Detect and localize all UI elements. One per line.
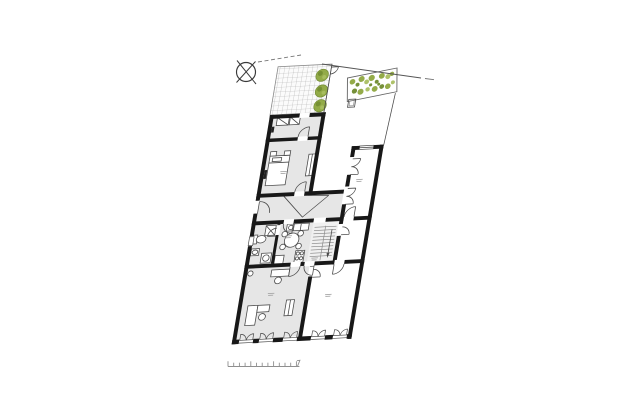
desk-left-return (257, 305, 270, 313)
washing-machine (260, 253, 272, 263)
floor-plan-page (0, 0, 640, 419)
room-label-mark-4 (356, 179, 363, 180)
door-r1-r2 (344, 207, 356, 217)
desk-top (271, 269, 290, 277)
north-compass-icon (237, 61, 257, 85)
garden-bed (347, 68, 397, 102)
site-plan (231, 61, 402, 345)
room-label-mark-5 (325, 294, 332, 295)
boundary-dashed (258, 55, 301, 62)
wall-right-outer (347, 145, 383, 339)
roof-terrace (270, 64, 339, 115)
bathroom-sink (250, 249, 259, 256)
nightstand-left (270, 151, 277, 156)
boundary-end-dash (425, 79, 434, 80)
nightstand-right (284, 151, 291, 156)
room-label-mark-5-b (325, 296, 330, 297)
scalebar-end-glyph (297, 360, 300, 366)
door-lower-right-room (332, 264, 344, 274)
bed-pillow (272, 158, 282, 162)
room-label-mark-4-b (356, 181, 361, 182)
planter-inner (349, 101, 354, 106)
courtyard-fence-right (384, 93, 396, 144)
scale-bar (228, 360, 300, 366)
floor-plan-drawing (0, 0, 640, 419)
